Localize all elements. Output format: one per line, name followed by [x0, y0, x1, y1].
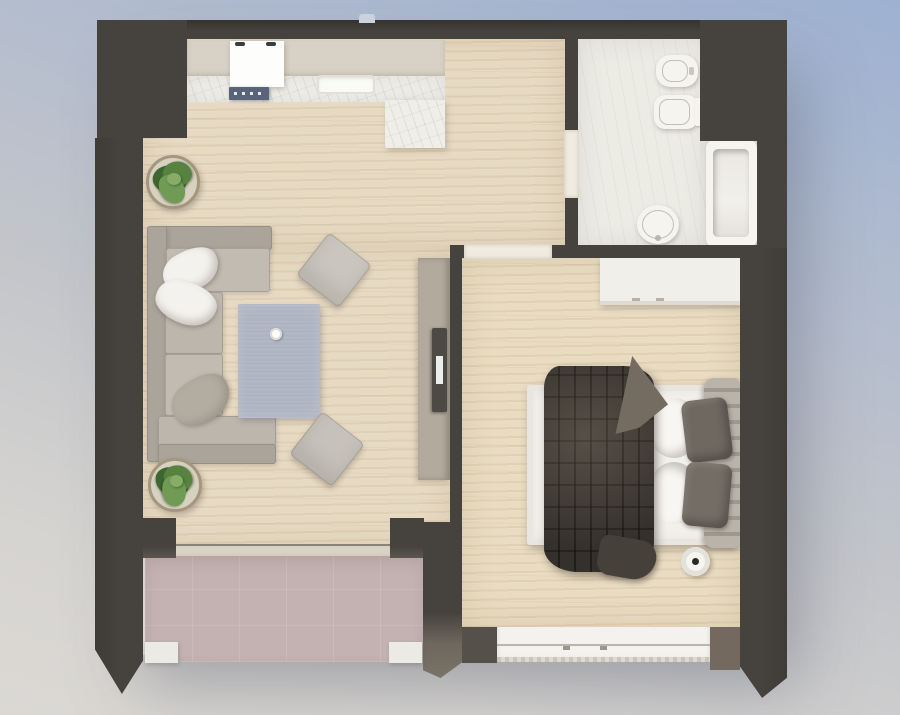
- stove: [230, 41, 284, 87]
- coffee-cup: [270, 328, 282, 340]
- potted-plant-top: [146, 155, 200, 209]
- bathroom-door-threshold: [564, 130, 579, 198]
- cooktop-panel: [229, 87, 269, 100]
- bathtub: [706, 140, 757, 247]
- bedroom-door-threshold: [464, 244, 552, 259]
- wall-top-left-block: [97, 20, 187, 138]
- balcony-parapet-right: [389, 642, 422, 663]
- wall-partition-living-bedroom: [450, 245, 462, 535]
- toilet: [654, 95, 698, 129]
- kitchen-counter: [187, 40, 445, 77]
- bed-pillow-2: [681, 461, 732, 529]
- cooktop-knobs: [234, 92, 264, 95]
- wall-top: [97, 20, 787, 39]
- sofa-seat-bottom: [158, 416, 276, 446]
- wall-bedroom-bottom-right: [710, 627, 740, 670]
- bathtub-basin: [713, 149, 749, 237]
- sofa-back-top: [156, 226, 272, 250]
- wall-bottom-center: [423, 522, 462, 678]
- bedroom-window: [497, 627, 710, 662]
- wardrobe: [600, 258, 740, 305]
- washbasin-drain: [655, 235, 661, 241]
- potted-plant-bottom: [148, 458, 202, 512]
- floor-balcony: [145, 556, 425, 662]
- washbasin: [637, 205, 679, 244]
- window-bottom-track: [497, 657, 710, 662]
- bidet: [656, 55, 698, 87]
- wall-right-mid: [757, 141, 787, 248]
- top-wall-vent: [359, 14, 375, 23]
- wardrobe-handle: [656, 298, 664, 301]
- wall-bedroom-bottom-left: [462, 627, 497, 663]
- bed-pillow-1: [680, 396, 733, 463]
- bidet-faucet: [689, 67, 694, 75]
- wall-right: [740, 248, 787, 698]
- kitchen-sink: [317, 75, 375, 94]
- stove-handle-right: [266, 42, 276, 46]
- wall-right-top-block: [700, 20, 787, 141]
- kitchen-backsplash: [187, 76, 445, 102]
- plant-leaves: [167, 173, 181, 185]
- round-stool: [681, 547, 710, 576]
- plant-leaves: [170, 475, 183, 487]
- wall-balcony-stub-left: [143, 518, 176, 558]
- floor-plan-scene: [0, 0, 900, 715]
- window-handle: [600, 646, 607, 650]
- rug: [238, 304, 320, 418]
- balcony-parapet-left: [145, 642, 178, 663]
- kitchen-cabinet-marble: [385, 100, 445, 148]
- stove-handle-left: [235, 42, 245, 46]
- bidet-bowl: [662, 60, 688, 82]
- window-handle: [563, 646, 570, 650]
- wall-balcony-stub-right: [390, 518, 424, 558]
- tv: [432, 328, 447, 412]
- wardrobe-handle: [632, 298, 640, 301]
- tv-screen-glare: [436, 356, 443, 384]
- wall-left: [95, 138, 143, 694]
- toilet-seat: [659, 99, 690, 125]
- round-stool-center: [692, 558, 699, 565]
